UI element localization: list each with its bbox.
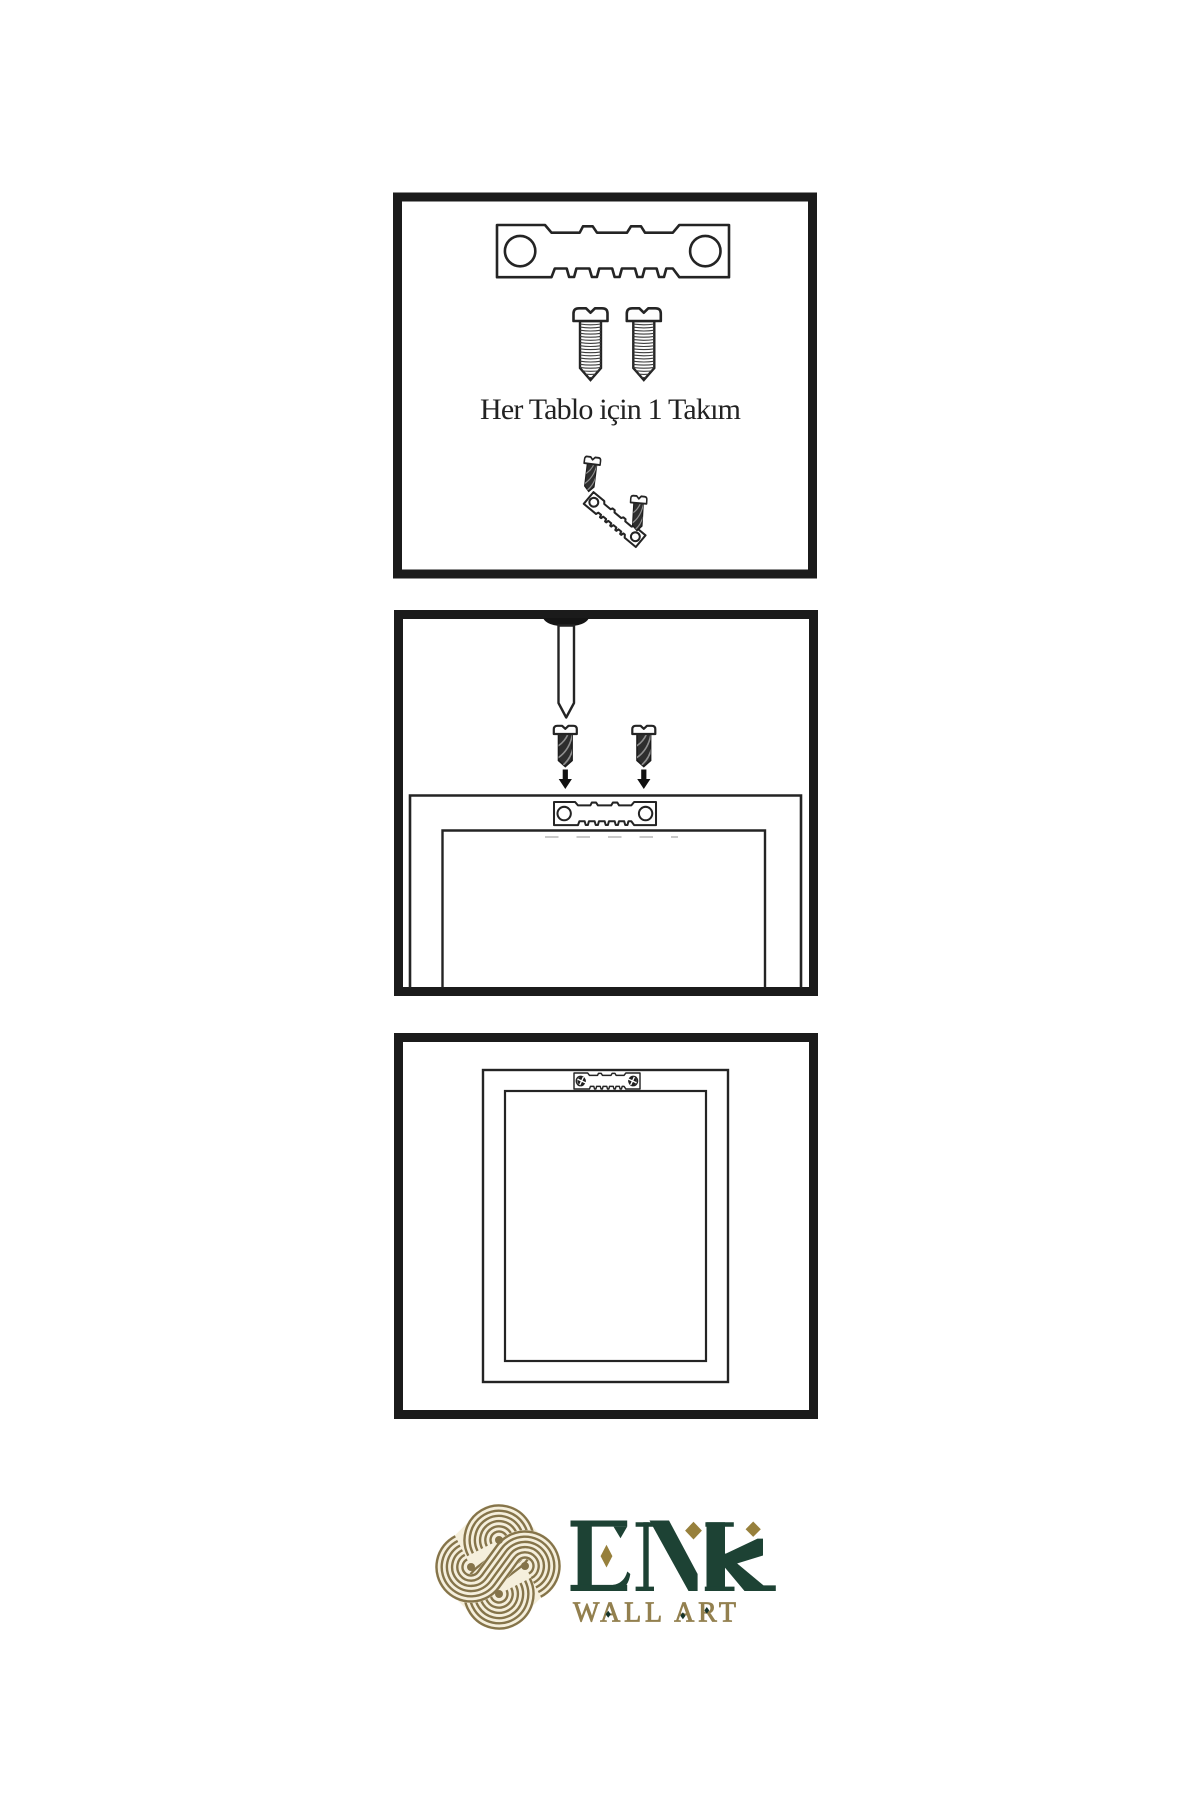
svg-text:Her Tablo için 1 Takım: Her Tablo için 1 Takım [480,393,741,426]
svg-text:WALL ART: WALL ART [573,1598,738,1629]
